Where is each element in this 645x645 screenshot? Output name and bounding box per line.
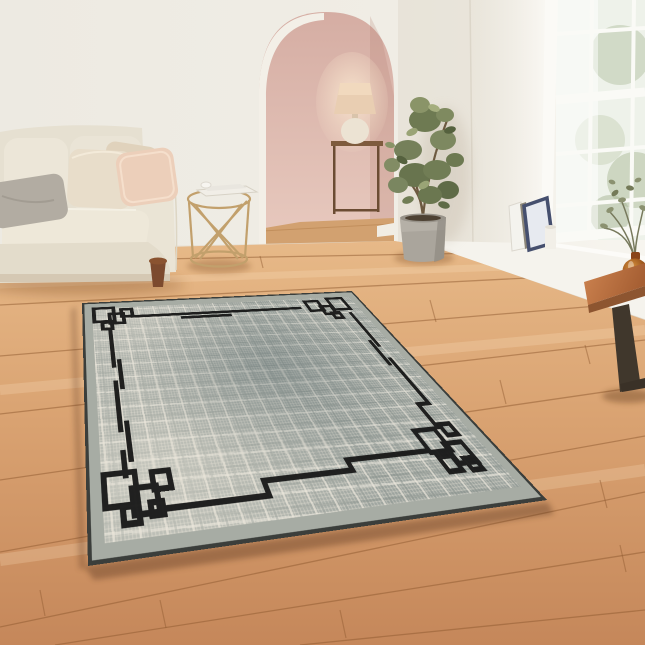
rug-corner-motif-top-left (94, 307, 135, 330)
living-room-photo (0, 0, 645, 645)
rug-corner-motif-bottom-right (411, 423, 488, 473)
blush-cushion (115, 146, 180, 208)
round-vase (341, 118, 369, 144)
small-cup (201, 182, 211, 188)
rug-corner-motif-bottom-left (103, 468, 177, 527)
sofa (0, 125, 179, 287)
rug-corner-motif-top-right (303, 298, 358, 319)
candle (545, 227, 556, 249)
window (468, 0, 645, 267)
archway (259, 12, 394, 247)
sill-items (509, 198, 556, 251)
